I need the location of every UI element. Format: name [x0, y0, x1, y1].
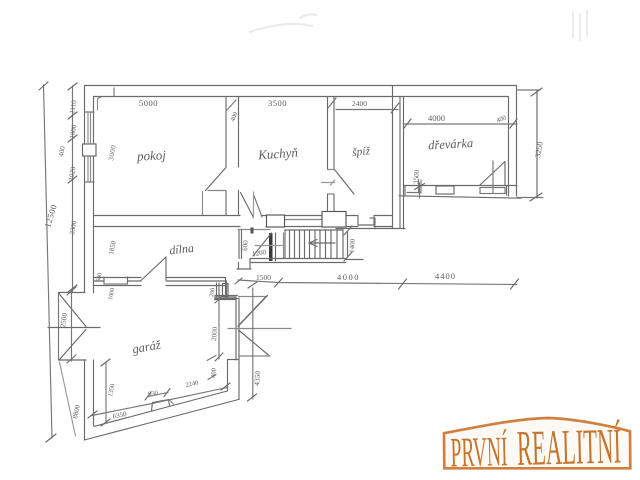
- svg-text:6350: 6350: [112, 410, 128, 421]
- svg-text:1850: 1850: [107, 240, 118, 256]
- svg-text:1350: 1350: [107, 383, 116, 397]
- svg-text:3000: 3000: [107, 144, 118, 161]
- svg-text:2000: 2000: [210, 326, 219, 341]
- svg-text:2400: 2400: [352, 99, 367, 108]
- svg-text:3300: 3300: [68, 220, 78, 236]
- svg-text:1000: 1000: [108, 287, 116, 300]
- svg-text:4350: 4350: [252, 370, 262, 386]
- svg-text:pokoj: pokoj: [136, 147, 167, 164]
- svg-text:dílna: dílna: [169, 241, 195, 258]
- svg-text:2500: 2500: [58, 312, 69, 328]
- svg-text:930: 930: [148, 390, 159, 399]
- svg-text:2240: 2240: [185, 379, 199, 389]
- svg-text:1500: 1500: [256, 273, 271, 282]
- svg-text:5000: 5000: [139, 98, 158, 108]
- svg-text:garáž: garáž: [131, 337, 163, 356]
- svg-text:4400: 4400: [435, 271, 456, 281]
- svg-text:1000: 1000: [68, 124, 78, 140]
- svg-text:1400: 1400: [348, 238, 357, 253]
- svg-text:dřevárka: dřevárka: [428, 136, 474, 152]
- svg-text:400: 400: [496, 114, 508, 124]
- svg-text:3500: 3500: [412, 169, 421, 184]
- svg-text:3250: 3250: [533, 141, 545, 158]
- svg-text:PRVNÍ: PRVNÍ: [450, 428, 508, 476]
- svg-text:3500: 3500: [268, 98, 287, 108]
- svg-text:špíž: špíž: [352, 145, 371, 159]
- svg-text:12500: 12500: [42, 203, 59, 229]
- svg-text:Kuchyň: Kuchyň: [257, 145, 299, 163]
- svg-text:1020: 1020: [67, 166, 77, 182]
- svg-text:400: 400: [210, 368, 218, 378]
- svg-text:1200: 1200: [252, 248, 267, 258]
- svg-text:REALITNÍ: REALITNÍ: [516, 417, 621, 476]
- svg-text:4000: 4000: [428, 113, 445, 123]
- svg-text:600: 600: [241, 240, 250, 252]
- svg-text:4000: 4000: [337, 272, 360, 282]
- svg-text:8800: 8800: [71, 404, 82, 420]
- svg-text:400: 400: [57, 145, 67, 157]
